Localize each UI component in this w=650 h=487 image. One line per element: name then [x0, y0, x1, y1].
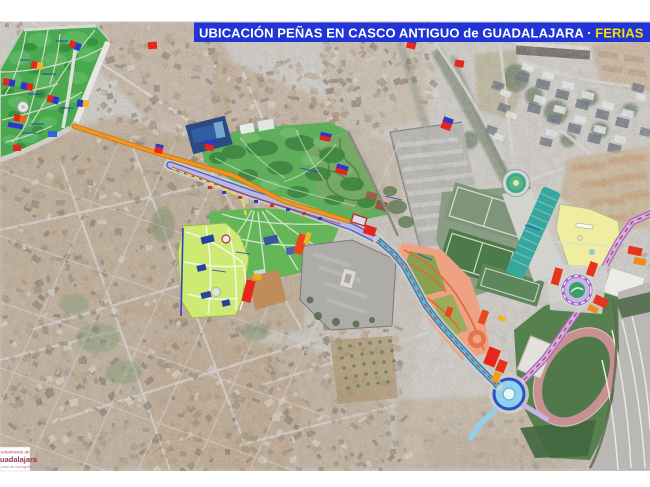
- svg-text:rvicio de Cartografía: rvicio de Cartografía: [1, 465, 33, 469]
- svg-text:untamiento de: untamiento de: [1, 450, 30, 455]
- svg-text:UBICACIÓN PEÑAS EN CASCO ANTIG: UBICACIÓN PEÑAS EN CASCO ANTIGUO de GUAD…: [199, 26, 644, 41]
- svg-text:uadalajara: uadalajara: [0, 455, 38, 464]
